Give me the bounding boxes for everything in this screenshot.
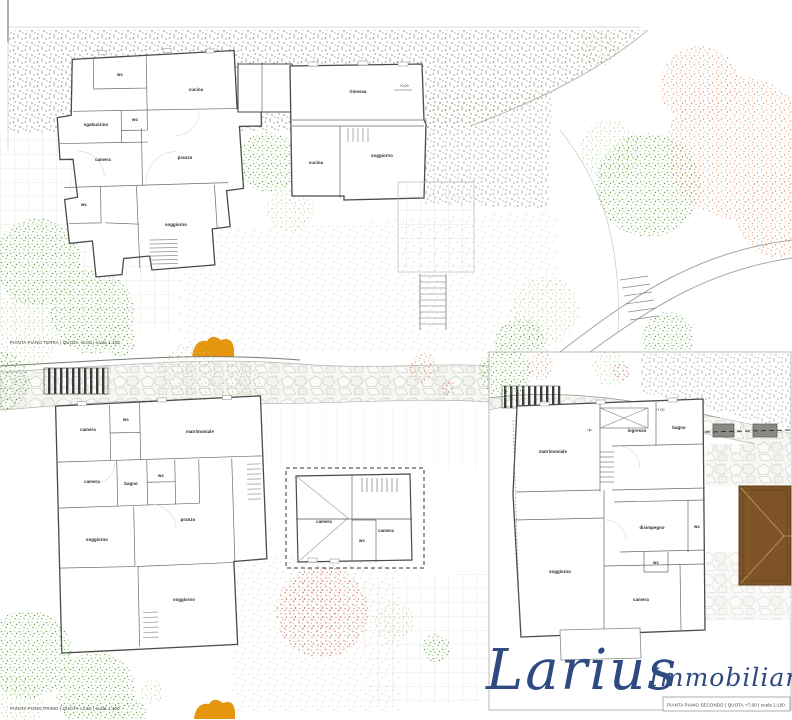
caption-piano-terra: PIANTA PIANO TERRA | QUOTA +0,00 | scala… xyxy=(10,340,120,345)
room-label: wc xyxy=(693,524,700,529)
room-label: wc xyxy=(116,72,123,77)
tree-icon xyxy=(660,46,740,126)
room-label: soggiorno xyxy=(371,153,393,158)
quota-label: +0,00 xyxy=(399,84,408,88)
room-label: pranzo xyxy=(178,155,193,160)
room-label: disimpegno xyxy=(639,525,664,530)
room-label: wc xyxy=(358,538,365,543)
stone-wall xyxy=(706,552,739,620)
room-label: camera xyxy=(633,597,649,602)
room-label: rimessa xyxy=(350,89,367,94)
roof-window xyxy=(713,424,734,437)
room-label: wc xyxy=(131,117,138,122)
tree-icon xyxy=(580,120,640,180)
room-label: rip. xyxy=(588,428,593,432)
tree-icon xyxy=(238,132,298,192)
room-label: camera xyxy=(95,157,111,162)
roof-brown xyxy=(739,486,791,585)
tree-icon xyxy=(409,353,439,383)
room-label: soggiorno xyxy=(165,222,187,227)
tree-icon xyxy=(611,363,629,381)
building-primo-annex xyxy=(286,468,424,568)
plan-piano-terra: wc cucina sgabuzzino wc camera pranzo wc… xyxy=(0,0,792,371)
room-label: cucina xyxy=(309,160,324,165)
exterior-stair-right xyxy=(620,276,658,320)
tree-icon xyxy=(288,578,344,634)
logo-suffix: Immobiliare xyxy=(648,663,792,692)
stone-wall xyxy=(706,444,791,486)
room-label: cucina xyxy=(189,87,204,92)
paving-grid xyxy=(266,408,478,470)
building-primo-main xyxy=(55,395,268,653)
tree-icon xyxy=(374,602,414,642)
tree-icon xyxy=(422,634,450,662)
room-label: soggiorno xyxy=(173,597,195,602)
room-label: camera xyxy=(84,479,100,484)
room-label: wc xyxy=(80,202,87,207)
room-label: bagno xyxy=(672,425,686,430)
room-label: camera xyxy=(80,427,96,432)
orange-tree-icon xyxy=(194,700,235,719)
tree-icon xyxy=(439,380,455,396)
room-label: camera xyxy=(378,528,394,533)
room-label: soggiorno xyxy=(86,537,108,542)
pergola-hatch xyxy=(44,368,108,394)
tree-icon xyxy=(526,352,554,380)
tree-icon xyxy=(162,344,218,400)
terrace-grid xyxy=(398,182,474,272)
caption-piano-primo: PIANTA PIANO PRIMO | QUOTA +3,50 | scala… xyxy=(10,706,120,711)
room-label: matrimoniale xyxy=(186,429,214,434)
tree-icon xyxy=(582,30,618,66)
room-label: wc xyxy=(122,417,129,422)
room-label: soggiorno xyxy=(549,569,571,574)
plan-piano-primo: camera wc matrimoniale camera bagno wc p… xyxy=(0,344,490,720)
caption-text: PIANTA PIANO SECONDO | QUOTA +7,00 | sca… xyxy=(667,703,785,708)
floorplan-collage: wc cucina sgabuzzino wc camera pranzo wc… xyxy=(0,0,792,720)
building-terra-connector xyxy=(238,64,292,112)
room-label: wc xyxy=(652,560,659,565)
tree-icon xyxy=(479,346,531,398)
room-label: wc xyxy=(157,473,164,478)
room-label: matrimoniale xyxy=(539,449,567,454)
caption-piano-secondo: PIANTA PIANO SECONDO | QUOTA +7,00 | sca… xyxy=(663,697,790,711)
room-label: bagno xyxy=(124,481,138,486)
quota-label: +7,00 xyxy=(655,408,664,412)
building-secondo xyxy=(513,398,705,660)
room-label: camera xyxy=(316,519,332,524)
stone-wall xyxy=(739,585,791,620)
floorplan-svg: wc cucina sgabuzzino wc camera pranzo wc… xyxy=(0,0,792,720)
tree-icon xyxy=(140,680,164,704)
room-label: ingresso xyxy=(628,428,647,433)
building-terra-right xyxy=(290,61,426,200)
room-label: sgabuzzino xyxy=(84,122,109,127)
room-label: pranzo xyxy=(181,517,196,522)
